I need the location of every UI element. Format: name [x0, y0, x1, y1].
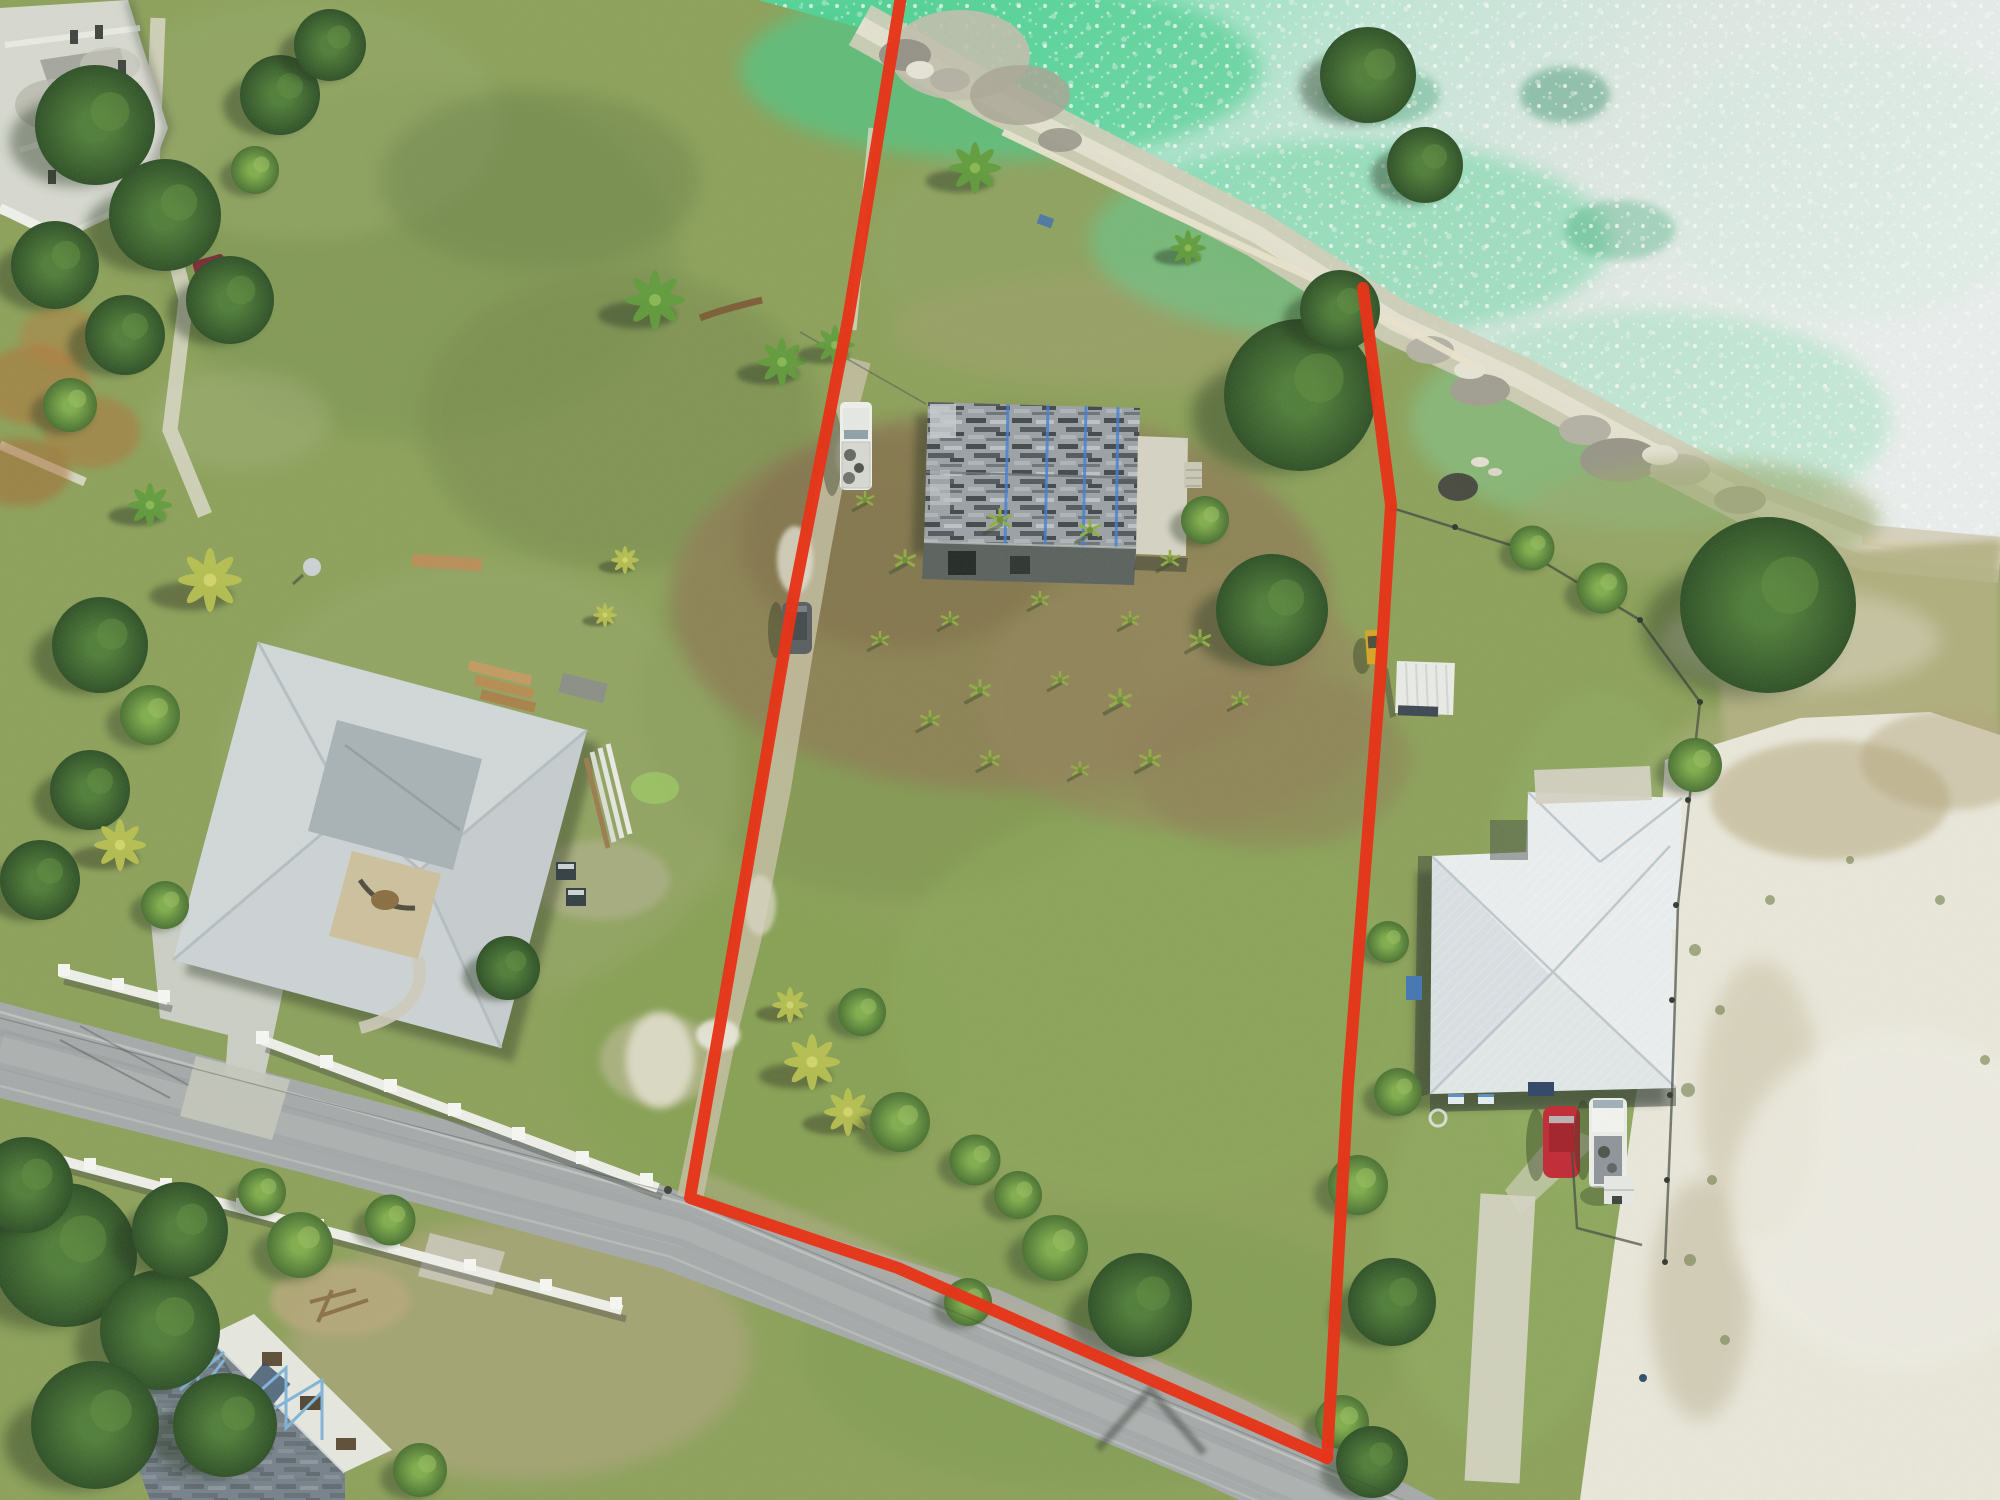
- scene: [0, 0, 2000, 1500]
- photo-grain: [0, 0, 2000, 1500]
- aerial-photo: [0, 0, 2000, 1500]
